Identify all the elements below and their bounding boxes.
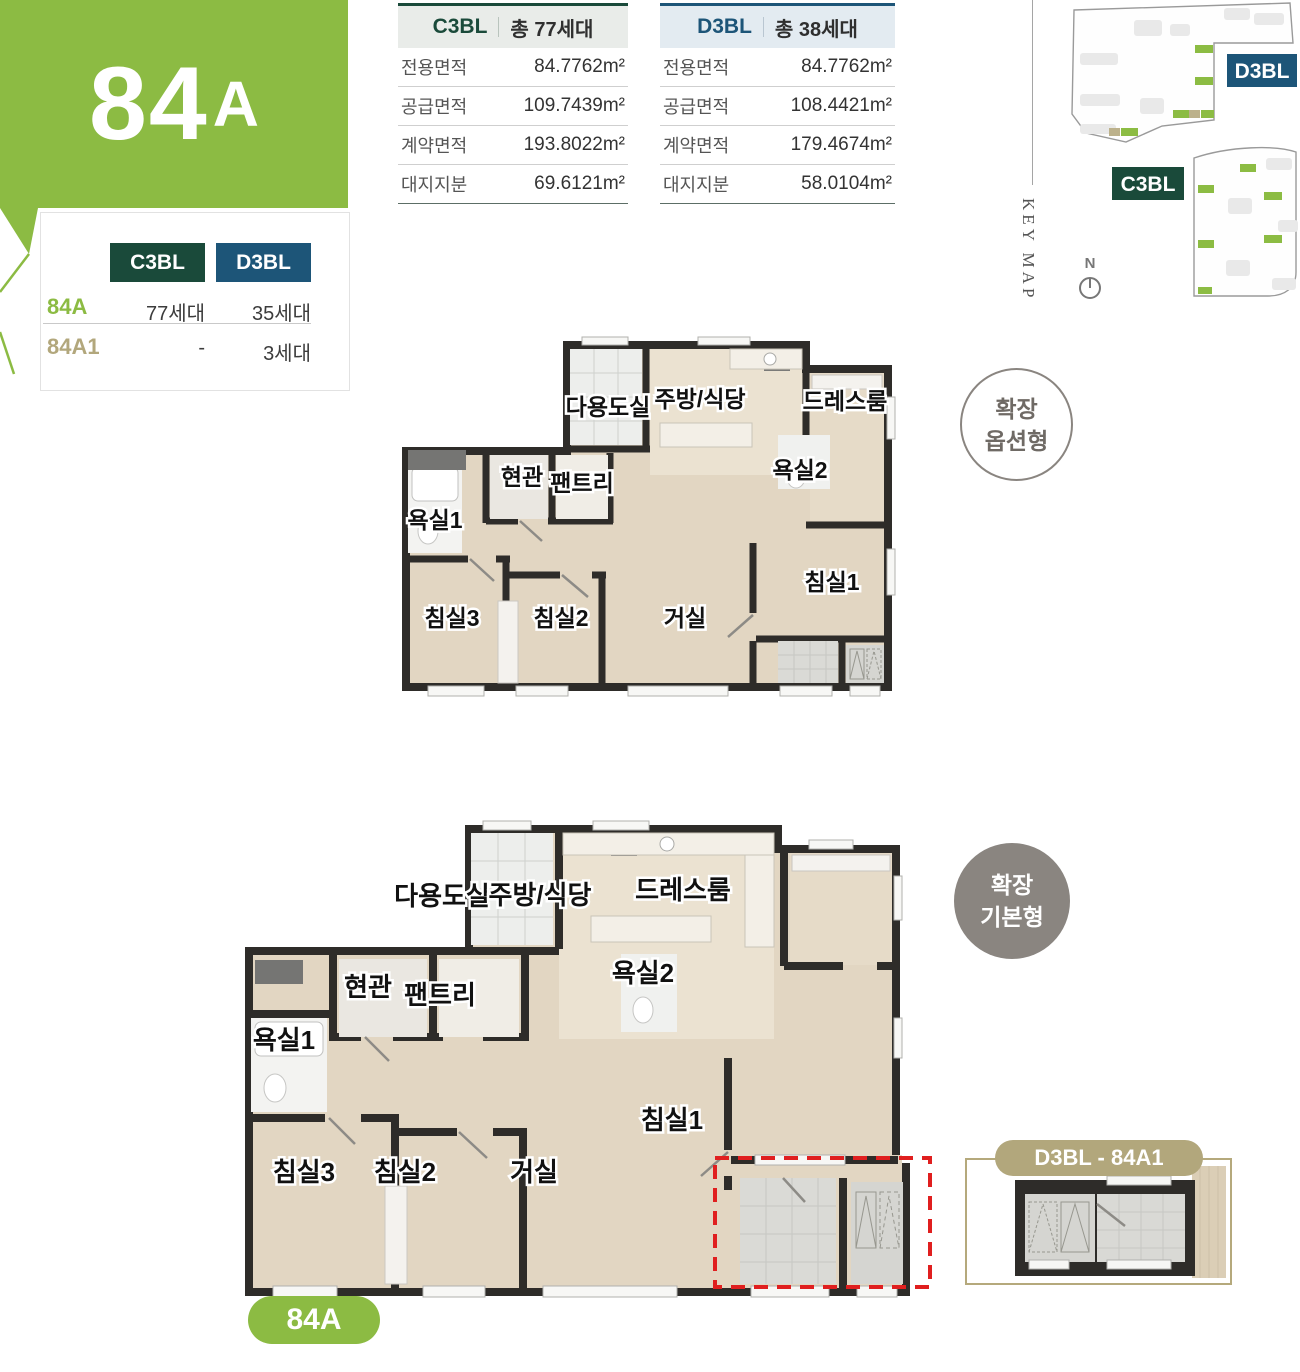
unit-type-hero-badge: 84 A bbox=[0, 0, 348, 208]
plan-type-badge-basic: 확장 기본형 bbox=[954, 843, 1070, 959]
count-84a1-d3bl: 3세대 bbox=[216, 337, 311, 366]
room-label-bath2: 욕실2 bbox=[612, 958, 674, 988]
room-label-pantry: 팬트리 bbox=[550, 470, 613, 496]
spec-row: 공급면적108.4421m² bbox=[660, 87, 895, 126]
room-label-kitchen: 주방/식당 bbox=[489, 880, 592, 910]
block-chip-c3bl: C3BL bbox=[110, 243, 205, 282]
room-label-utility: 다용도실 bbox=[566, 394, 651, 420]
svg-text:D3BL: D3BL bbox=[1235, 60, 1290, 83]
spec-block-name: C3BL bbox=[433, 15, 488, 39]
room-label-kitchen: 주방/식당 bbox=[654, 386, 745, 412]
floor-plan-option: 다용도실 주방/식당 드레스룸 현관 팬트리 욕실2 욕실1 침실3 침실2 거… bbox=[398, 335, 913, 703]
household-count-card: C3BL D3BL 84A 77세대 35세대 84A1 - 3세대 bbox=[40, 212, 350, 391]
room-label-living: 거실 bbox=[510, 1157, 558, 1187]
spec-table-d3bl-header: D3BL 총 38세대 bbox=[660, 3, 895, 48]
spec-total-households: 총 77세대 bbox=[510, 13, 593, 42]
header-divider bbox=[498, 17, 499, 37]
block-chip-d3bl: D3BL bbox=[216, 243, 311, 282]
keymap-illustration: D3BL C3BL N bbox=[1040, 0, 1300, 310]
unit-number: 84 bbox=[89, 52, 209, 156]
room-label-bed2: 침실2 bbox=[374, 1157, 436, 1187]
room-label-bath2: 욕실2 bbox=[772, 457, 827, 483]
room-label-entrance: 현관 bbox=[344, 972, 392, 1002]
room-label-bed1: 침실1 bbox=[641, 1105, 703, 1135]
card-divider bbox=[43, 323, 311, 324]
subplan-badge: D3BL - 84A1 bbox=[995, 1140, 1203, 1176]
spec-block-name: D3BL bbox=[697, 15, 752, 39]
spec-row: 전용면적84.7762m² bbox=[660, 48, 895, 87]
room-label-pantry: 팬트리 bbox=[404, 980, 476, 1010]
floor-plan-basic: 다용도실 주방/식당 드레스룸 현관 팬트리 욕실2 욕실1 침실3 침실2 거… bbox=[243, 818, 938, 1303]
keymap-divider-line bbox=[1032, 0, 1033, 185]
room-label-entrance: 현관 bbox=[501, 464, 543, 490]
floor-plan-brochure-page: 84 A C3BL D3BL 84A 77세대 35세대 84A1 - 3세대 … bbox=[0, 0, 1300, 1372]
room-label-bath1: 욕실1 bbox=[253, 1025, 315, 1055]
row-label-84a: 84A bbox=[47, 294, 87, 320]
room-label-dress: 드레스룸 bbox=[635, 875, 731, 905]
count-84a1-c3bl: - bbox=[110, 337, 205, 360]
room-label-bed2: 침실2 bbox=[533, 605, 588, 631]
spec-row: 계약면적193.8022m² bbox=[398, 126, 628, 165]
north-compass-icon: N bbox=[1080, 255, 1100, 298]
spec-total-households: 총 38세대 bbox=[775, 13, 858, 42]
keymap-badge-c3bl: C3BL bbox=[1112, 167, 1184, 200]
spec-row: 공급면적109.7439m² bbox=[398, 87, 628, 126]
room-label-bed1: 침실1 bbox=[804, 569, 859, 595]
plan-type-badge-option: 확장 옵션형 bbox=[960, 368, 1073, 481]
count-84a-c3bl: 77세대 bbox=[110, 297, 205, 326]
spec-table-c3bl: C3BL 총 77세대 전용면적84.7762m² 공급면적109.7439m²… bbox=[398, 3, 628, 204]
room-label-living: 거실 bbox=[664, 605, 706, 631]
spec-row: 대지지분58.0104m² bbox=[660, 165, 895, 204]
subplan-panel-d3bl-84a1 bbox=[965, 1158, 1232, 1285]
plan-unit-pill: 84A bbox=[248, 1296, 380, 1344]
spec-row: 대지지분69.6121m² bbox=[398, 165, 628, 204]
spec-row: 전용면적84.7762m² bbox=[398, 48, 628, 87]
room-label-bed3: 침실3 bbox=[273, 1157, 335, 1187]
row-label-84a1: 84A1 bbox=[47, 334, 100, 360]
room-label-dress: 드레스룸 bbox=[803, 388, 888, 414]
keymap-title: KEY MAP bbox=[1018, 198, 1038, 301]
spec-table-c3bl-header: C3BL 총 77세대 bbox=[398, 3, 628, 48]
svg-text:C3BL: C3BL bbox=[1121, 173, 1176, 196]
keymap-badge-d3bl: D3BL bbox=[1227, 54, 1297, 87]
spec-row: 계약면적179.4674m² bbox=[660, 126, 895, 165]
svg-text:N: N bbox=[1085, 255, 1096, 272]
count-84a-d3bl: 35세대 bbox=[216, 297, 311, 326]
unit-suffix: A bbox=[213, 72, 259, 136]
header-divider bbox=[763, 17, 764, 37]
room-label-bath1: 욕실1 bbox=[407, 507, 462, 533]
room-label-bed3: 침실3 bbox=[424, 605, 479, 631]
subplan-illustration bbox=[967, 1160, 1230, 1283]
spec-table-d3bl: D3BL 총 38세대 전용면적84.7762m² 공급면적108.4421m²… bbox=[660, 3, 895, 204]
room-label-utility: 다용도실 bbox=[394, 881, 490, 911]
